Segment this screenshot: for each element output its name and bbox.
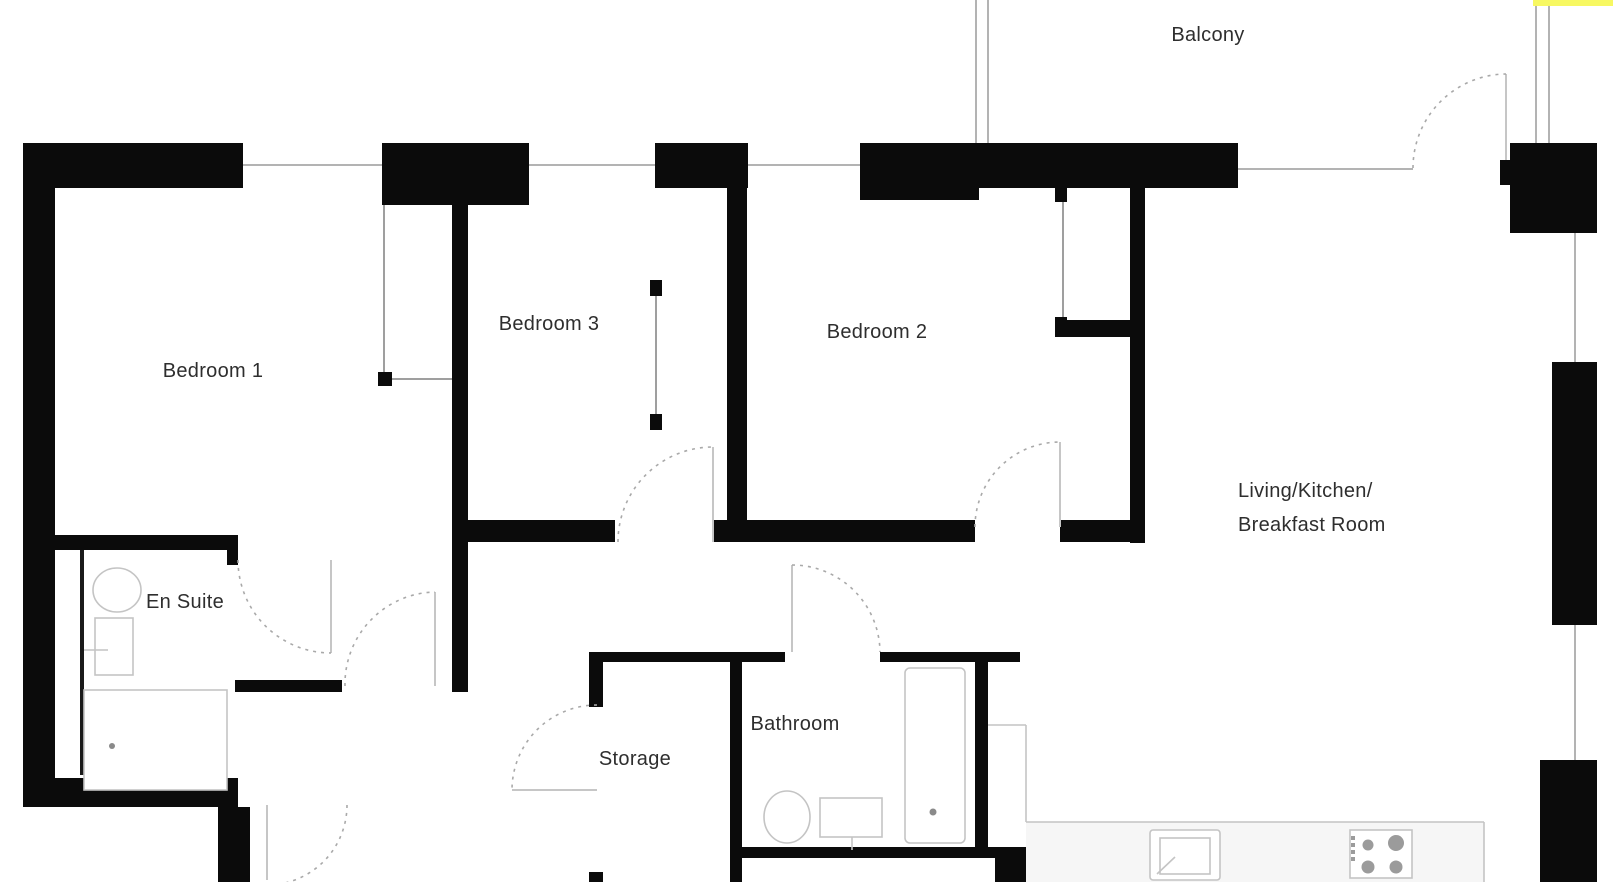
wall-segment [1060, 520, 1143, 542]
label-bedroom2: Bedroom 2 [827, 321, 928, 343]
door-swing-arc [267, 805, 347, 882]
walls [23, 143, 1597, 882]
kitchen-sink-icon [1150, 830, 1220, 880]
floor-plan-svg: Bedroom 1 Bedroom 3 Bedroom 2 Balcony En… [0, 0, 1613, 882]
label-bathroom: Bathroom [750, 713, 839, 735]
label-storage: Storage [599, 748, 671, 770]
wall-segment [1500, 160, 1510, 185]
wall-segment [1552, 362, 1597, 625]
wall-stub [378, 372, 392, 386]
burner [1388, 835, 1404, 851]
hob-outline [1350, 830, 1412, 878]
burner [1362, 861, 1375, 874]
wall-segment [975, 662, 988, 847]
burner [1390, 861, 1403, 874]
label-bedroom1: Bedroom 1 [163, 360, 264, 382]
door-en-suite [238, 560, 331, 653]
wardrobe-recesses [378, 202, 1130, 430]
wall-segment [995, 847, 1026, 882]
door-swing-arc [1413, 74, 1506, 168]
wall-segment [462, 520, 615, 542]
burner [1363, 840, 1374, 851]
hob-control [1351, 836, 1355, 840]
hob-control [1351, 843, 1355, 847]
wall-segment [235, 680, 342, 692]
door-swing-arc [512, 705, 597, 790]
wall-segment [1540, 760, 1597, 882]
hob-control [1351, 857, 1355, 861]
label-living-line2: Breakfast Room [1238, 514, 1386, 536]
wall-segment [55, 535, 238, 550]
wall-segment [589, 872, 603, 882]
drain-icon [109, 743, 115, 749]
door-bedroom3 [618, 447, 713, 542]
wall-segment [880, 652, 1020, 662]
drain-icon [930, 809, 937, 816]
label-living-line1: Living/Kitchen/ [1238, 480, 1373, 502]
wall-stub [650, 280, 662, 296]
wall-stub [1055, 320, 1130, 337]
door-swing-arc [345, 592, 435, 686]
hob-icon [1350, 830, 1412, 878]
door-swing-arc [792, 565, 880, 652]
label-balcony: Balcony [1171, 24, 1244, 46]
wall-stub [650, 414, 662, 430]
wall-segment [747, 520, 975, 542]
bathtub-icon [905, 668, 965, 843]
wall-segment [730, 847, 1026, 858]
wall-segment [713, 520, 727, 542]
door-balcony [1413, 74, 1506, 168]
wall-segment [452, 188, 468, 692]
wall-segment [655, 143, 748, 188]
wall-segment [227, 550, 238, 565]
wall-segment [727, 188, 747, 542]
door-bedroom1 [345, 592, 435, 686]
bathroom-fixtures [764, 668, 965, 850]
basin-icon [820, 798, 882, 837]
door-swing-arc [618, 447, 713, 542]
door-storage [512, 705, 597, 790]
hob-control [1351, 850, 1355, 854]
wall-segment [860, 143, 1238, 188]
shower-tray-icon [84, 690, 227, 790]
wall-segment [1055, 185, 1067, 202]
balcony-rails [976, 0, 1613, 143]
wall-segment [589, 652, 785, 662]
wall-segment [1130, 183, 1145, 543]
door-swing-arc [238, 560, 331, 653]
wall-segment [1510, 143, 1597, 233]
toilet-icon [764, 791, 810, 843]
label-bedroom3: Bedroom 3 [499, 313, 600, 335]
basin-icon [95, 618, 133, 675]
toilet-icon [93, 568, 141, 612]
kitchen-counter [1026, 822, 1484, 882]
label-en-suite: En Suite [146, 591, 224, 613]
wall-segment [23, 143, 55, 807]
highlight-strip [1533, 0, 1613, 6]
floor-plan: Bedroom 1 Bedroom 3 Bedroom 2 Balcony En… [0, 0, 1613, 882]
wall-segment [23, 143, 243, 188]
wall-segment [860, 188, 979, 200]
door-entry [267, 805, 347, 882]
wall-segment [218, 807, 250, 882]
door-swing-arc [975, 442, 1060, 527]
wall-segment [589, 662, 603, 707]
sink-bowl [1160, 838, 1210, 874]
door-bathroom [792, 565, 880, 652]
door-bedroom2 [975, 442, 1060, 527]
